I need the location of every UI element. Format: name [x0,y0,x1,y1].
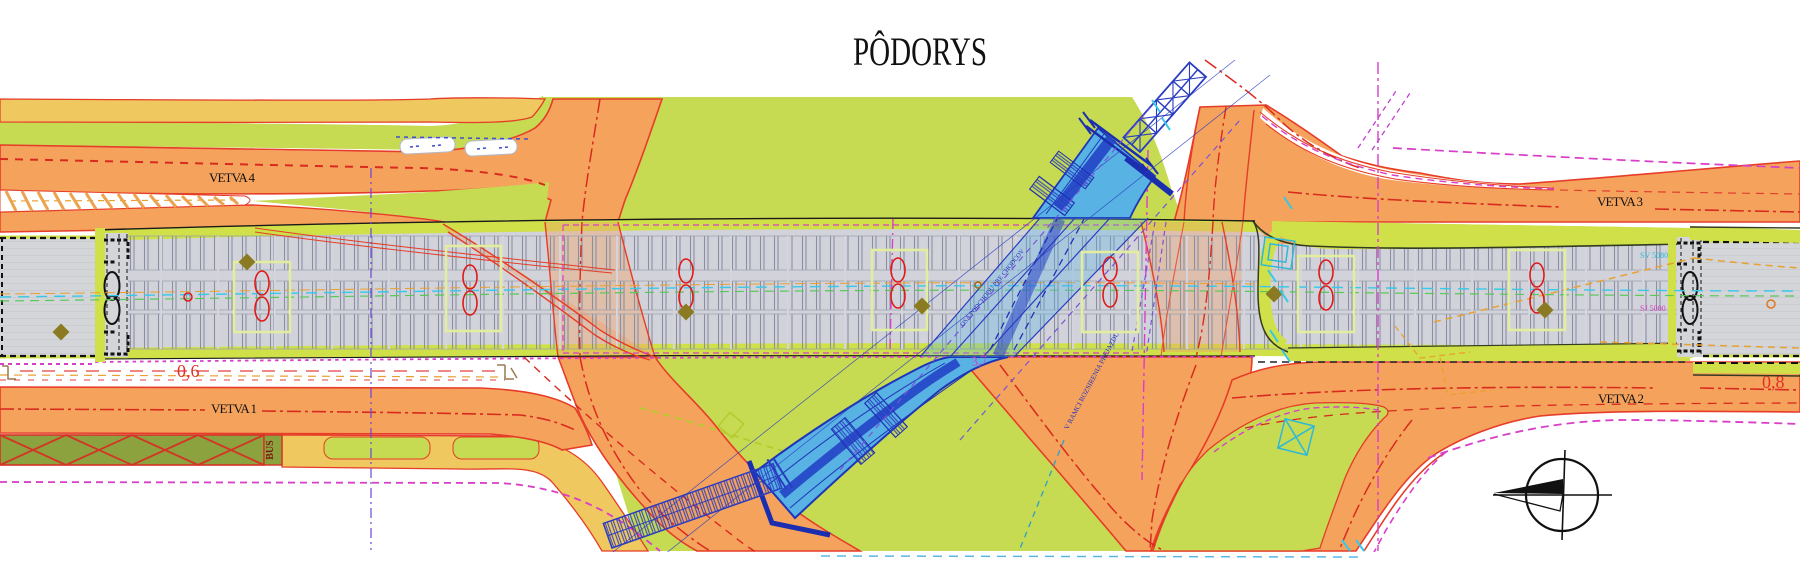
svg-text:PÔDORYS: PÔDORYS [853,29,987,74]
svg-text:SV 5080: SV 5080 [1640,251,1668,260]
svg-text:3,7: 3,7 [970,352,989,369]
svg-text:SJ 5000: SJ 5000 [1640,304,1666,313]
svg-text:VETVA 2: VETVA 2 [1598,391,1644,406]
svg-text:BUS: BUS [265,440,276,460]
svg-text:VETVA 1: VETVA 1 [211,401,257,416]
svg-text:VETVA 4: VETVA 4 [209,170,256,185]
svg-text:VETVA 3: VETVA 3 [1597,194,1643,209]
svg-text:0,8: 0,8 [1762,372,1785,392]
svg-text:0,6: 0,6 [177,361,200,381]
